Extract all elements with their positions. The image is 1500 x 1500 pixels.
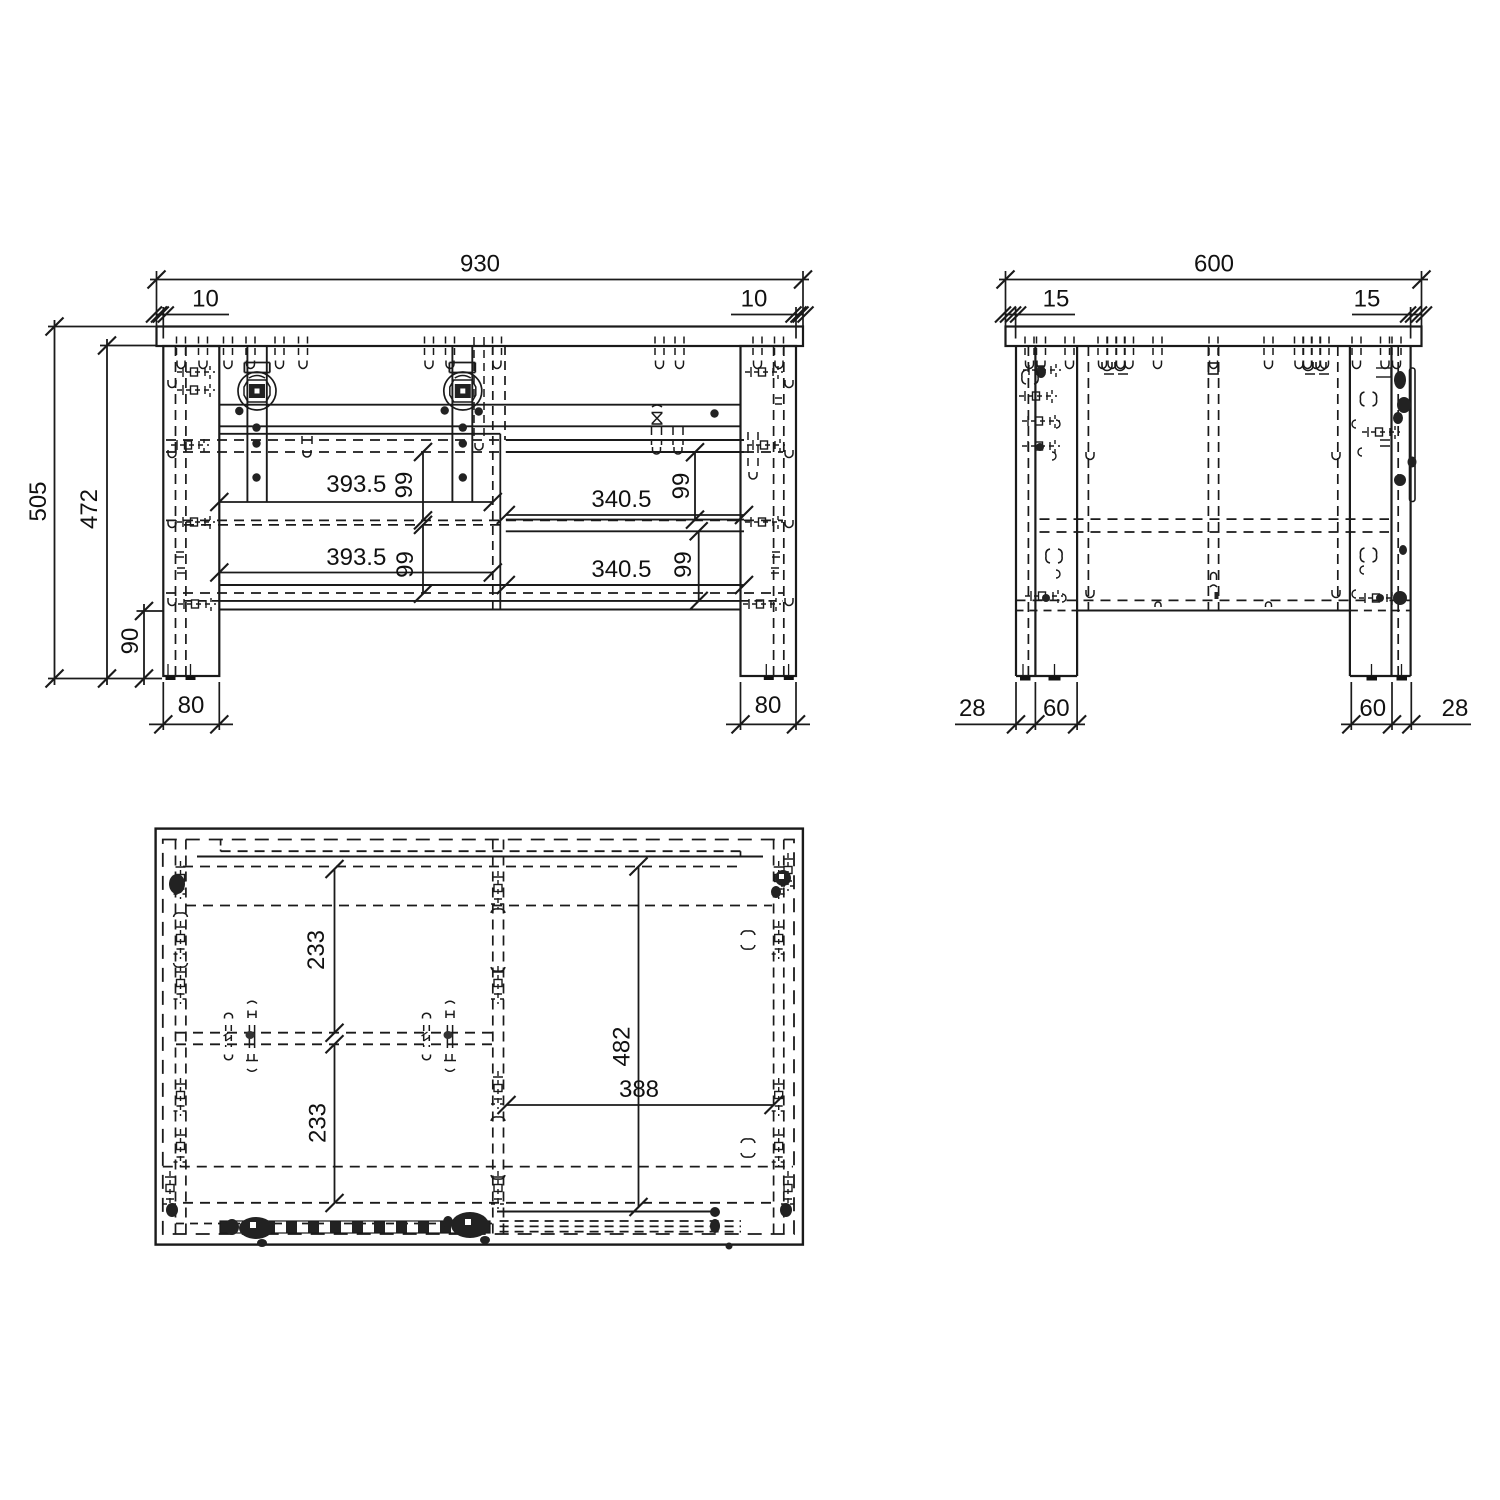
svg-text:340.5: 340.5 bbox=[591, 556, 651, 583]
svg-text:99: 99 bbox=[668, 473, 695, 500]
svg-text:482: 482 bbox=[609, 1026, 636, 1066]
svg-text:10: 10 bbox=[192, 286, 219, 313]
svg-text:80: 80 bbox=[178, 692, 205, 719]
svg-text:393.5: 393.5 bbox=[326, 544, 386, 571]
svg-text:99: 99 bbox=[391, 472, 418, 499]
svg-text:60: 60 bbox=[1359, 695, 1386, 722]
svg-text:233: 233 bbox=[305, 1103, 332, 1143]
svg-text:28: 28 bbox=[1442, 695, 1469, 722]
svg-text:600: 600 bbox=[1194, 251, 1234, 278]
svg-text:10: 10 bbox=[741, 286, 768, 313]
svg-text:15: 15 bbox=[1354, 286, 1381, 313]
svg-text:28: 28 bbox=[959, 695, 986, 722]
svg-text:233: 233 bbox=[303, 930, 330, 970]
svg-text:472: 472 bbox=[76, 489, 103, 529]
svg-text:99: 99 bbox=[670, 551, 697, 578]
svg-text:60: 60 bbox=[1043, 695, 1070, 722]
svg-text:505: 505 bbox=[25, 481, 52, 521]
svg-text:930: 930 bbox=[460, 251, 500, 278]
svg-text:99: 99 bbox=[392, 551, 419, 578]
svg-text:90: 90 bbox=[117, 628, 144, 655]
svg-text:393.5: 393.5 bbox=[326, 471, 386, 498]
svg-text:340.5: 340.5 bbox=[591, 486, 651, 513]
svg-text:80: 80 bbox=[755, 692, 782, 719]
svg-text:388: 388 bbox=[619, 1076, 659, 1103]
svg-text:15: 15 bbox=[1043, 286, 1070, 313]
